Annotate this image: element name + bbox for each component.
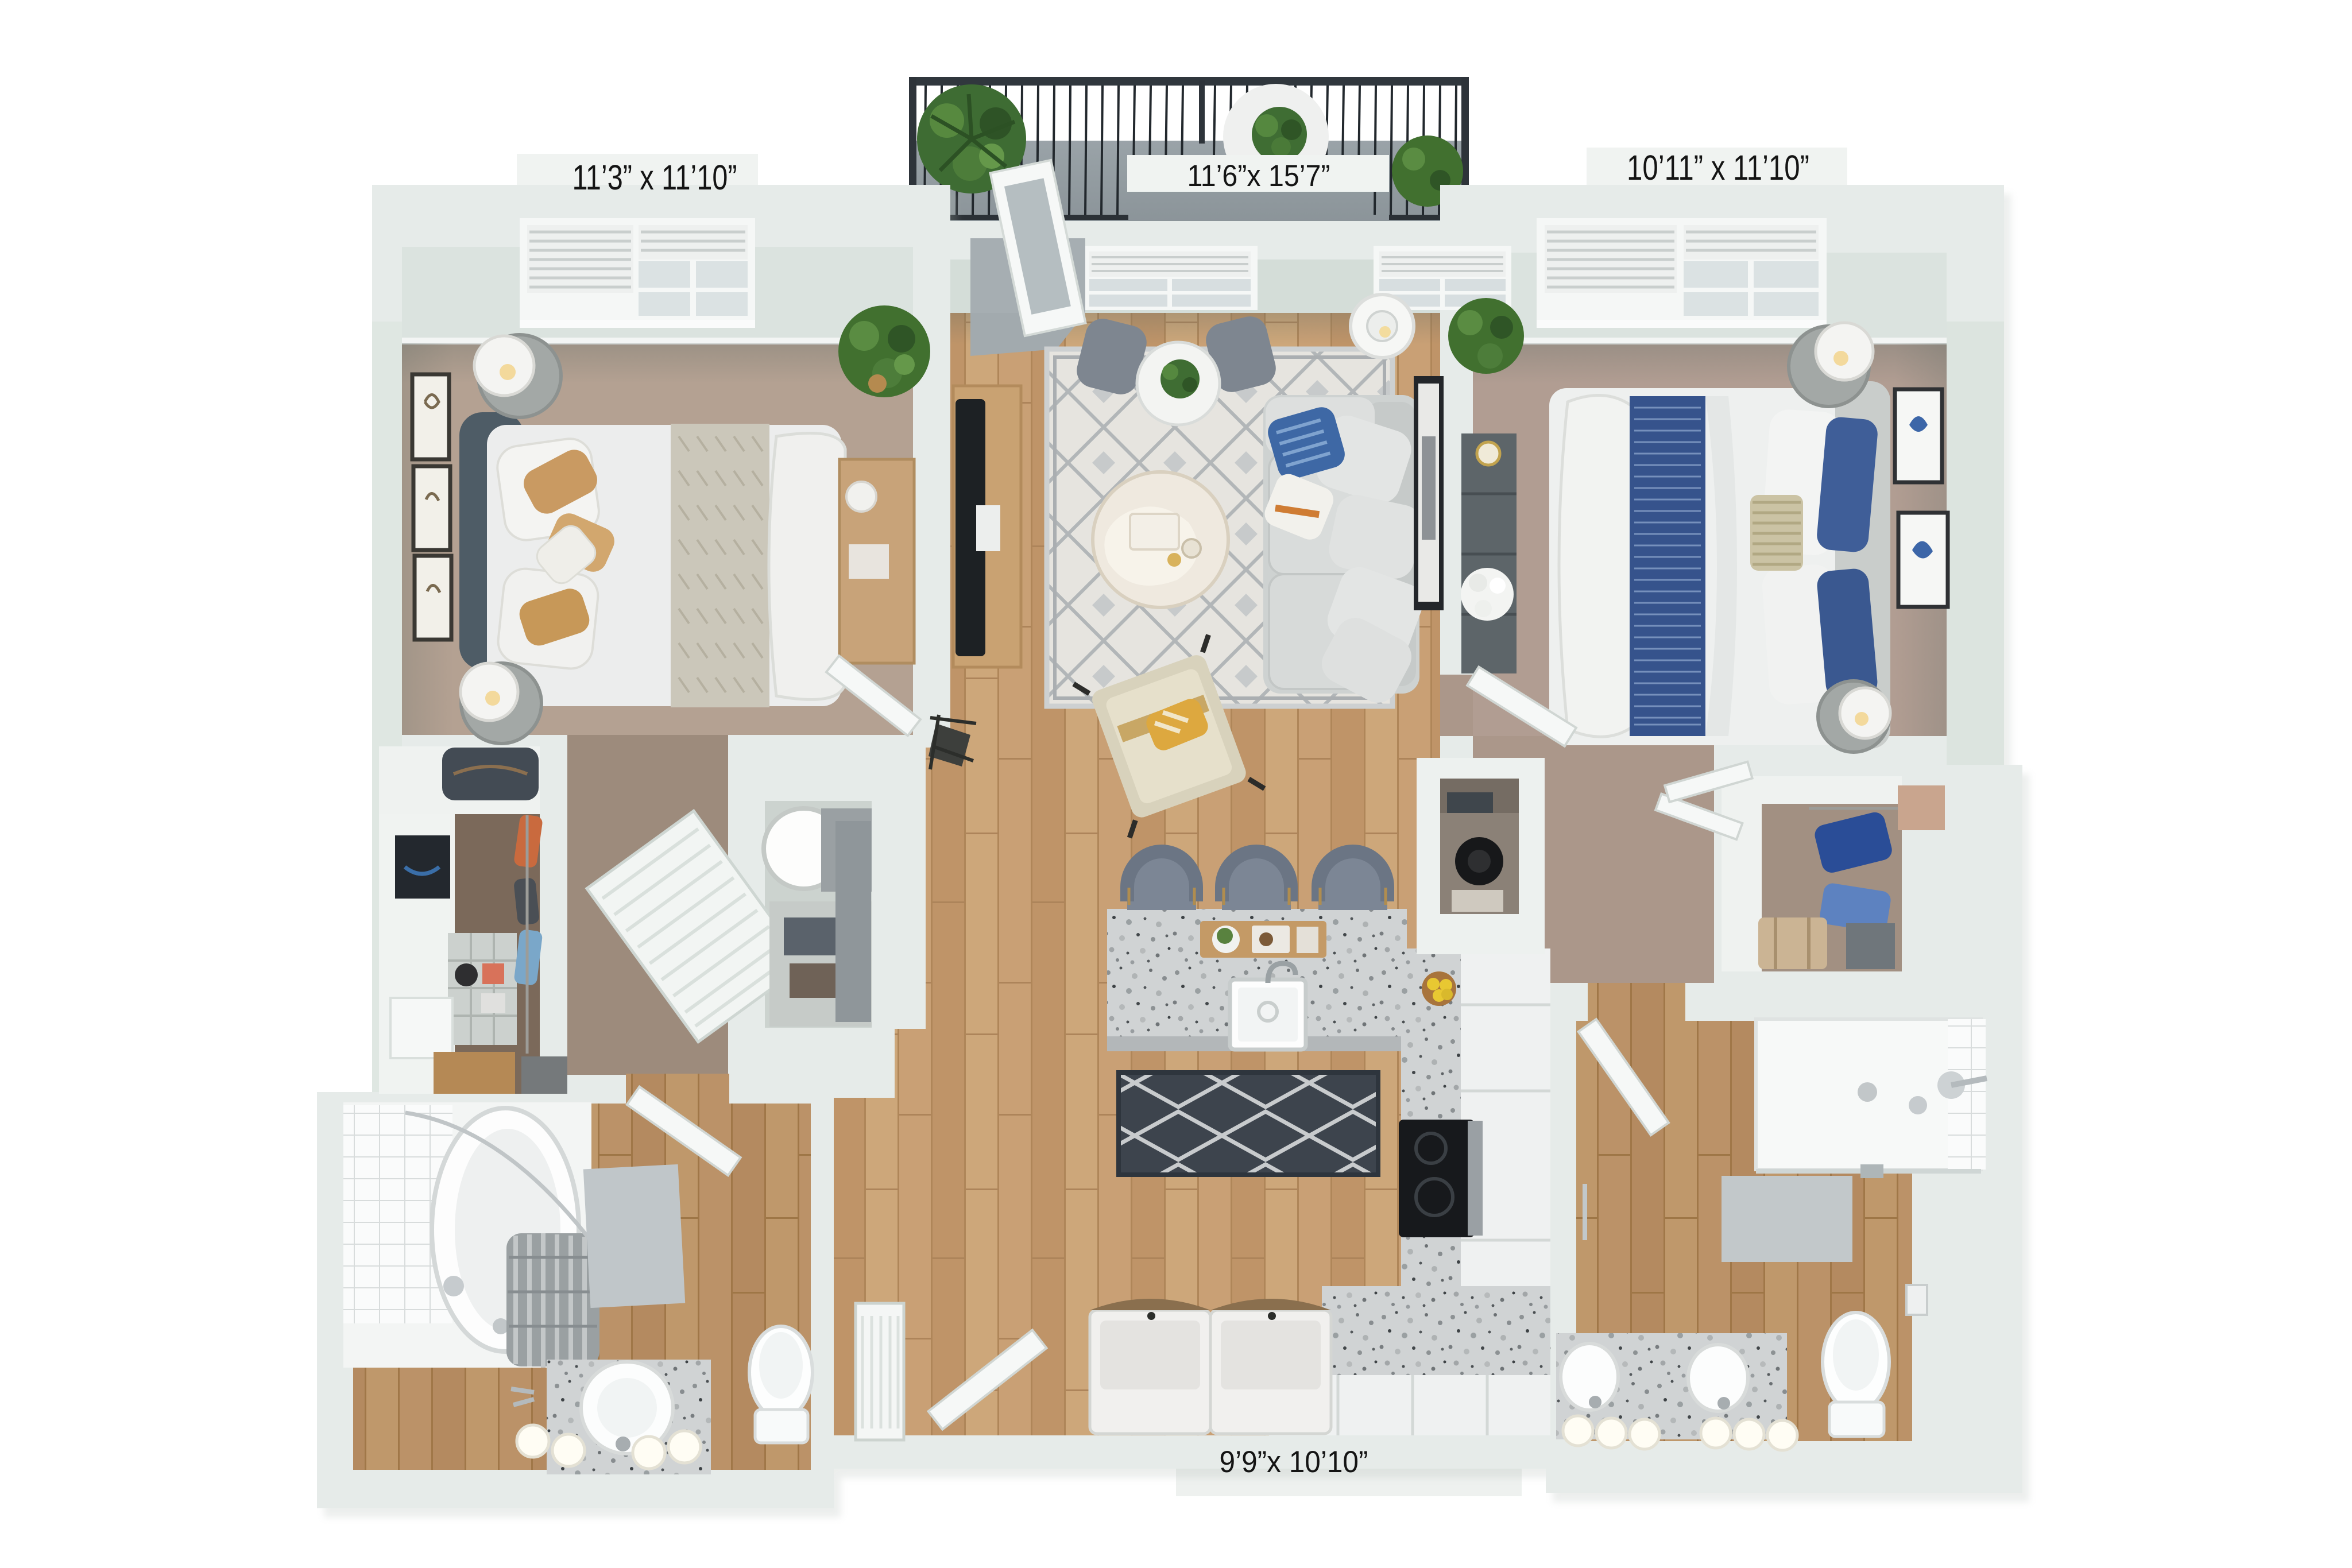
svg-text:10’11” x 11’10”: 10’11” x 11’10”	[1627, 148, 1809, 187]
svg-text:11’3” x 11’10”: 11’3” x 11’10”	[572, 158, 737, 197]
svg-text:9’9”x 10’10”: 9’9”x 10’10”	[1220, 1445, 1368, 1479]
svg-text:11’6”x 15’7”: 11’6”x 15’7”	[1187, 159, 1330, 193]
